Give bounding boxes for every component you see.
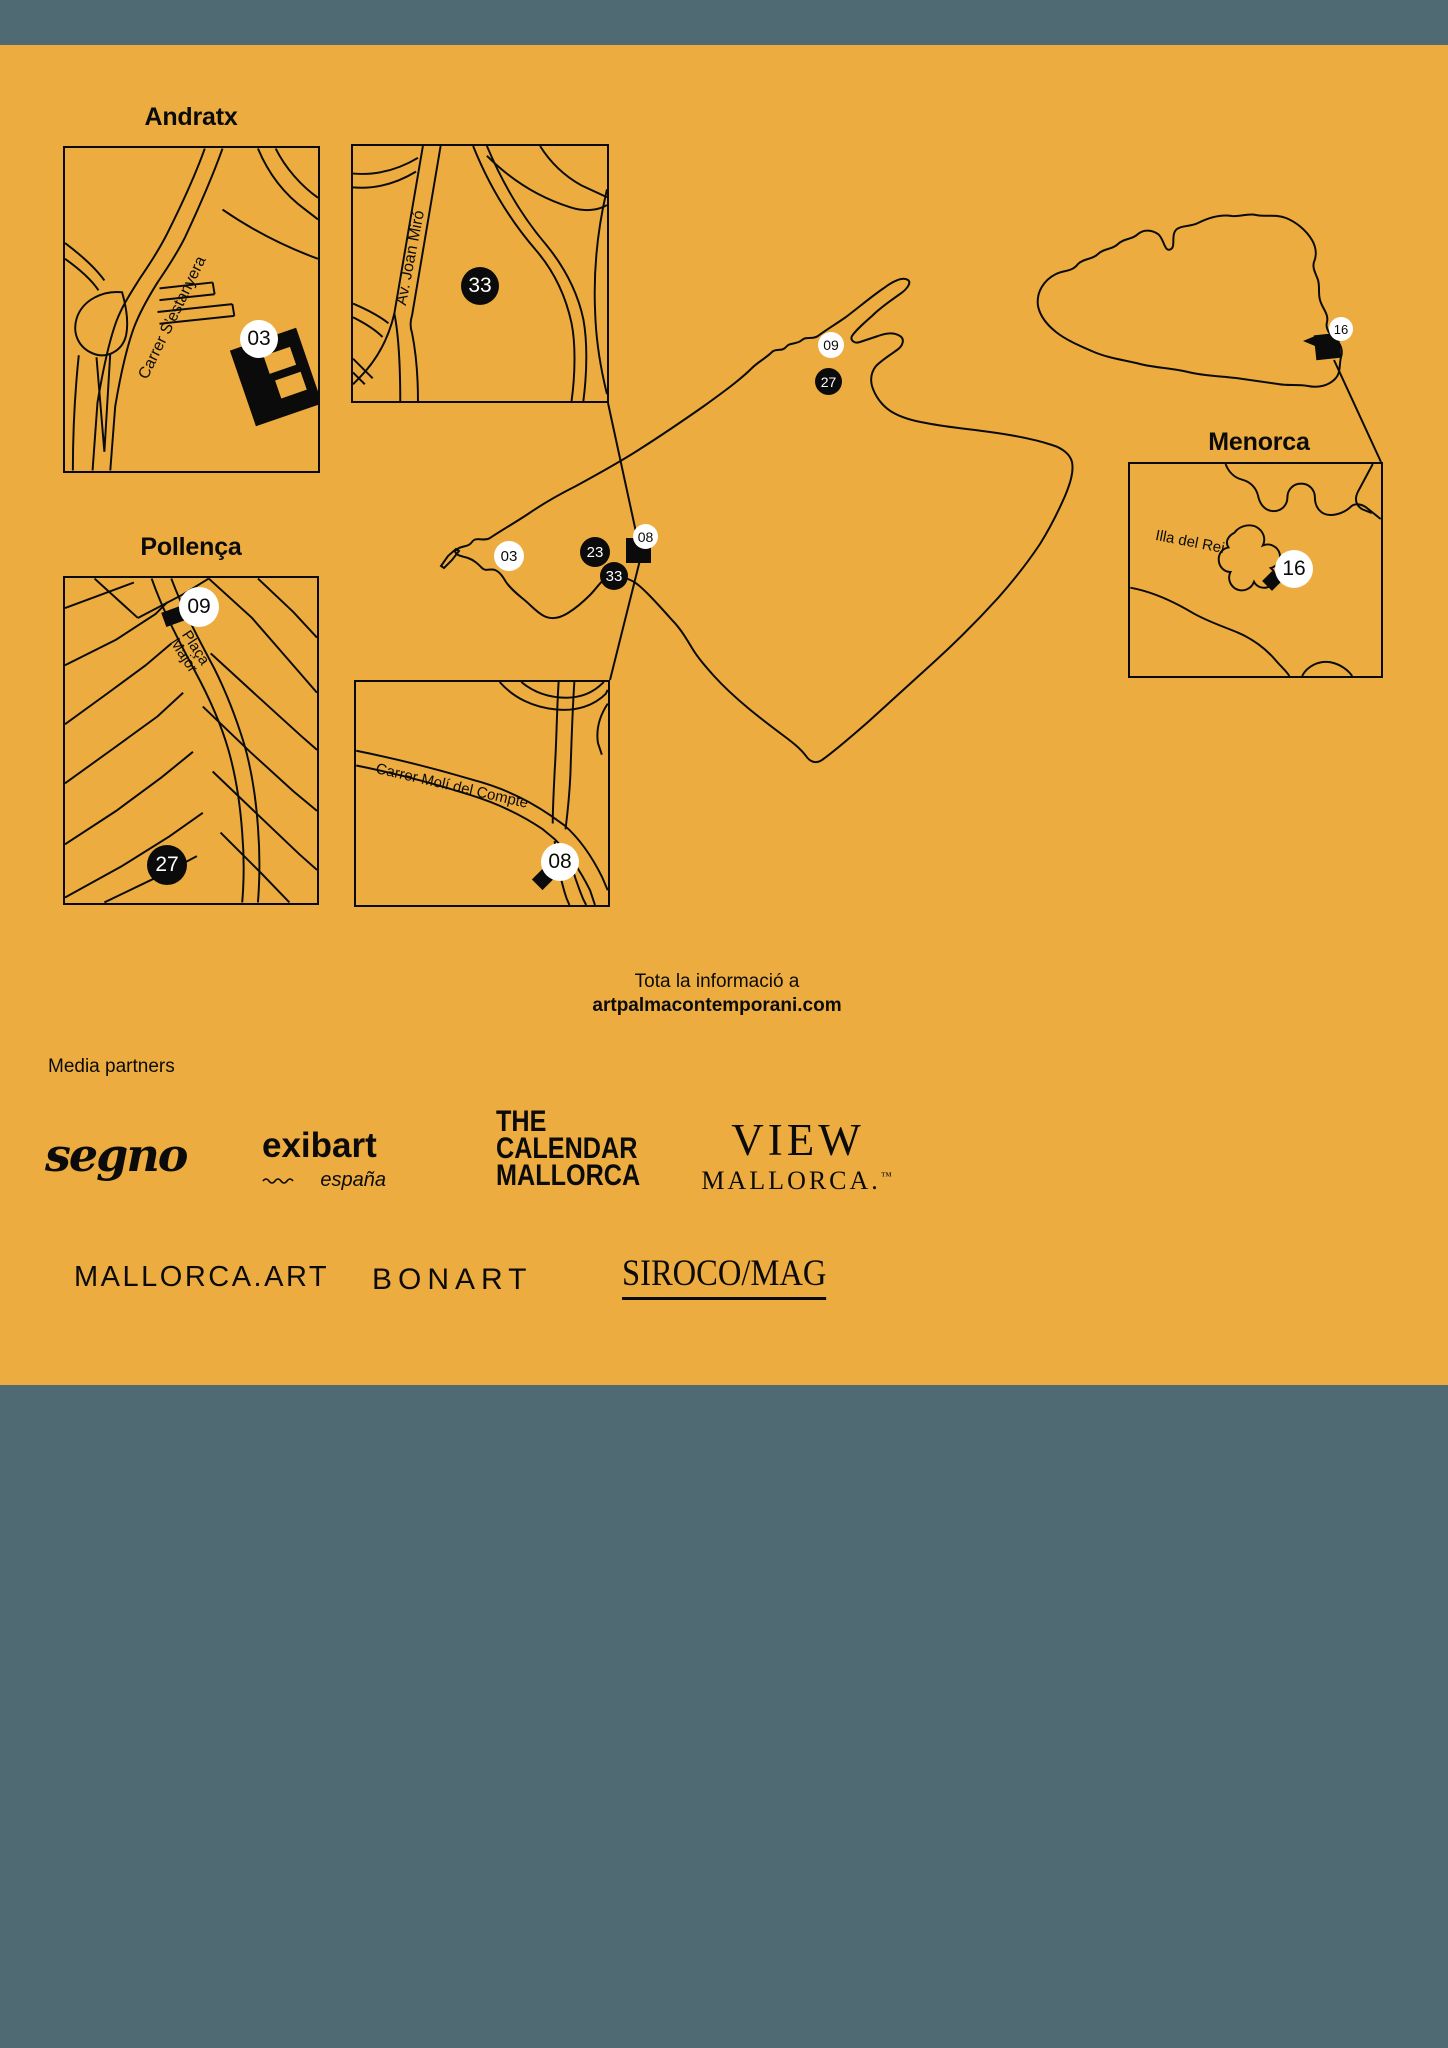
teal-footer-band (0, 1385, 1448, 2048)
palma-marker-33: 33 (461, 267, 499, 305)
andratx-streets-svg (65, 148, 318, 471)
andratx-inset-map: Carrer S’estanyera 03 (63, 146, 320, 473)
menorca-marker-16: 16 (1329, 317, 1353, 341)
mallorca-marker-27: 27 (815, 368, 842, 395)
andratx-title: Andratx (144, 103, 237, 132)
mallorca-marker-08: 08 (633, 524, 658, 549)
building-window (275, 372, 307, 399)
mallorca-marker-33: 33 (600, 562, 628, 590)
menorca-outline (1038, 214, 1342, 386)
mallorca-marker-09: 09 (818, 332, 844, 358)
pollenca-title: Pollença (140, 533, 241, 562)
moli-marker-08: 08 (541, 843, 579, 881)
pollenca-marker-27: 27 (147, 845, 187, 885)
menorca-title: Menorca (1208, 428, 1309, 457)
flag-tail (1303, 336, 1315, 346)
connector-palma-box-to-marker (608, 403, 639, 546)
mallorca-marker-23: 23 (580, 537, 610, 567)
connector-menorca-marker-to-box (1334, 360, 1381, 462)
pollenca-marker-09: 09 (179, 587, 219, 627)
menorca-detail-svg (1130, 464, 1381, 676)
andratx-marker-03: 03 (240, 320, 278, 358)
pollenca-inset-map: 09 Plaça Major 27 (63, 576, 319, 905)
moli-inset-map: Carrer Molí del Compte 08 (354, 680, 610, 907)
mallorca-marker-03: 03 (494, 541, 524, 571)
poster: Andratx Carrer S’estanyera 03 (0, 0, 1448, 2048)
menorca-inset-marker-16: 16 (1275, 550, 1313, 588)
palma-inset-map: Av. Joan Miró 33 (351, 144, 609, 403)
menorca-inset-map: Illa del Rei 16 (1128, 462, 1383, 678)
